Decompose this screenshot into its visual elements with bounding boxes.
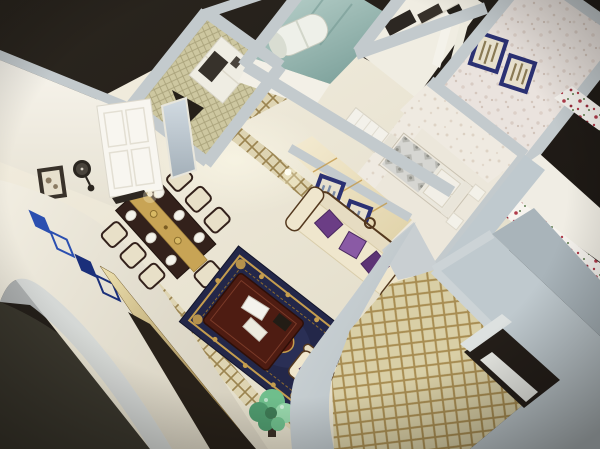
apartment-3d-render: 3D cutaway dollhouse rendering of a furn… xyxy=(0,0,600,449)
vignette-overlay xyxy=(0,0,600,449)
render-viewport: 3D cutaway dollhouse rendering of a furn… xyxy=(0,0,600,449)
